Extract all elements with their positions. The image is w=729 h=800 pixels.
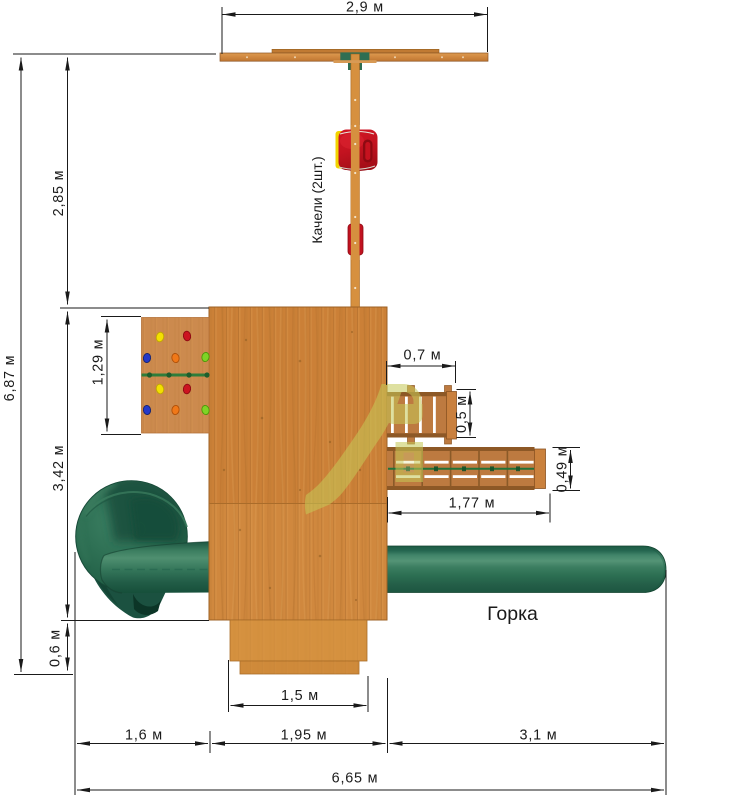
svg-text:3,42 м: 3,42 м: [51, 445, 67, 492]
svg-text:1,29 м: 1,29 м: [91, 339, 107, 386]
svg-text:Качели (2шт.): Качели (2шт.): [309, 156, 325, 243]
svg-text:2,85 м: 2,85 м: [51, 170, 67, 217]
svg-text:0,49 м: 0,49 м: [555, 446, 571, 493]
svg-text:6,65 м: 6,65 м: [332, 771, 379, 787]
svg-text:1,5 м: 1,5 м: [281, 688, 319, 704]
svg-text:3,1 м: 3,1 м: [520, 728, 558, 744]
svg-text:1,77 м: 1,77 м: [449, 496, 496, 512]
svg-text:0,7 м: 0,7 м: [404, 348, 442, 364]
svg-text:2,9 м: 2,9 м: [346, 0, 384, 16]
svg-text:1,6 м: 1,6 м: [125, 728, 163, 744]
svg-text:1,95 м: 1,95 м: [281, 728, 328, 744]
svg-text:6,87 м: 6,87 м: [2, 355, 18, 402]
svg-text:0,6 м: 0,6 м: [48, 629, 64, 667]
svg-text:0,5 м: 0,5 м: [454, 395, 470, 433]
svg-text:Горка: Горка: [487, 603, 538, 625]
